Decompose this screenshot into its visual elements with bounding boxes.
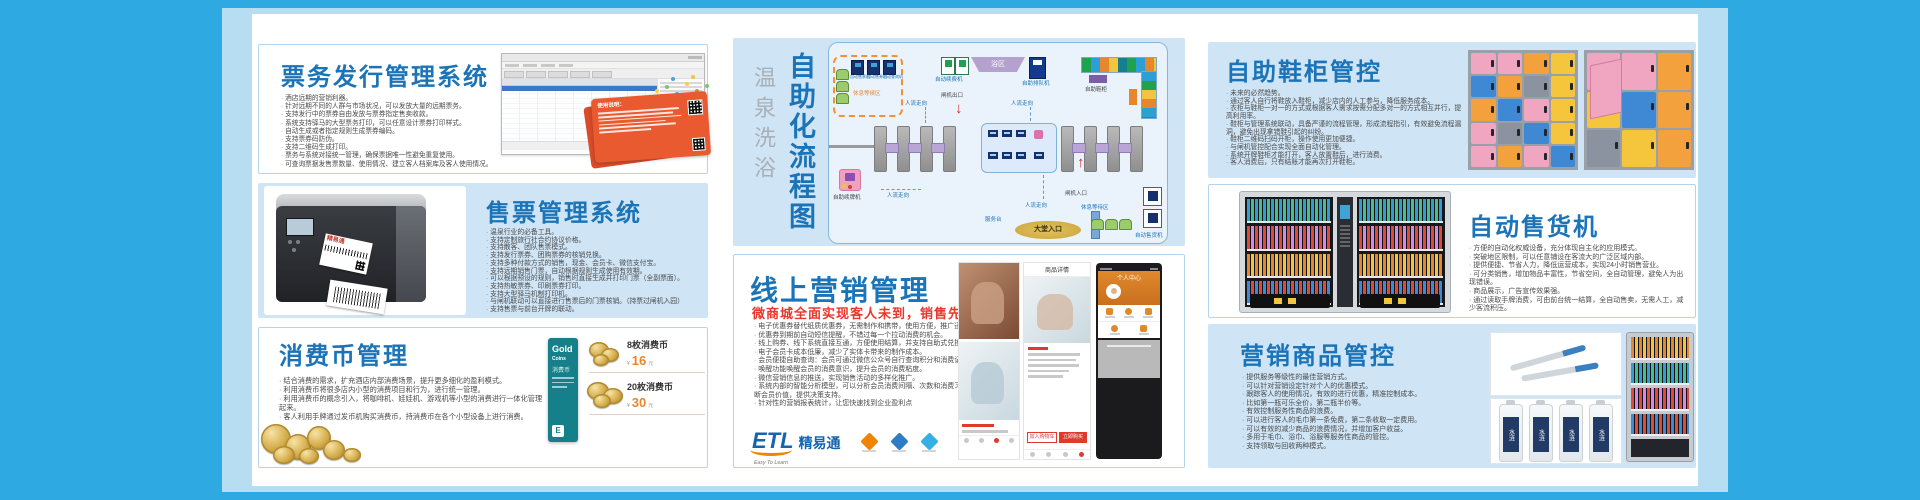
app-tabbar xyxy=(1024,449,1090,459)
chair-icon xyxy=(1091,219,1104,230)
price-value: ¥30元 xyxy=(627,395,742,410)
profile-icon-row xyxy=(1098,321,1160,338)
bullet-item: 支持票券码防伪。 xyxy=(281,136,493,144)
bullet-item: 鞋柜二维码扫码开柜，操作使用更加便捷。 xyxy=(1226,136,1462,144)
bullet-item: 与闸机管控配合实现全面自动化管理。 xyxy=(1226,144,1462,152)
bullet-item: 支持领取与回收两种模式。 xyxy=(1242,443,1482,452)
card-shoe-cabinet: 自助鞋柜管控 未来的必然趋势。通过客人自行将鞋放入鞋柜，减少店内的人工参与，降低… xyxy=(1208,42,1696,178)
bullet-item: 鞋柜与管理系统联动，具备严谨的流程管理，形成流程指引，有效避免流程漏洞，避免出现… xyxy=(1226,121,1462,136)
red-price-bar xyxy=(962,424,994,427)
chair-icon xyxy=(836,69,849,80)
dashed-path xyxy=(925,107,926,123)
dashed-path xyxy=(1030,107,1031,121)
blue-gem-icon xyxy=(920,432,938,450)
chair-icon xyxy=(1105,219,1118,230)
price-name: 20枚消费币 xyxy=(627,380,742,393)
price-value: ¥16元 xyxy=(627,353,742,368)
queue-machine-icon xyxy=(1029,57,1046,79)
window-menubar xyxy=(502,62,704,69)
bullet-item: 衣柜与鞋柜一对一的方式或根据客人需求按需分配多对一的方式相互并行，提高利用率。 xyxy=(1226,105,1462,120)
divider xyxy=(589,414,705,415)
bullet-item: 酒店远期的营销利器。 xyxy=(281,95,493,103)
bullet-item: 利用消费币将很多店内小型的消费项目和行为，进行统一管理。 xyxy=(279,385,547,394)
profile-footer xyxy=(1098,340,1160,378)
bath-photo xyxy=(959,342,1019,420)
dashed-path xyxy=(881,189,921,190)
exit-arrow-down: ↓ xyxy=(955,101,963,116)
bullet-item: 可以针对营销设定针对个人的优惠模式。 xyxy=(1242,383,1482,392)
gate-connector xyxy=(885,143,899,153)
etl-tagline: Easy To Learn xyxy=(754,453,788,473)
bullet-item: 客人消费后，只有结账才能再次打开鞋柜。 xyxy=(1226,159,1462,167)
printer-screen xyxy=(286,218,314,236)
gate-exit-label: 闸机出口 xyxy=(941,91,963,99)
bottle: 水涟 xyxy=(1589,404,1613,462)
bullet-item: 可以根据预设的规则，销售时直接生成并打印门票（全副票面）。 xyxy=(486,275,704,283)
gate-connector xyxy=(1095,143,1109,153)
profile-title: 个人中心 xyxy=(1098,271,1160,282)
vending-right-cabinet xyxy=(1357,197,1445,307)
renew-machine-icon xyxy=(941,57,955,75)
vending-map-label: 自动售货机 xyxy=(1135,231,1163,239)
printer-photo: 精易通 xyxy=(264,186,466,315)
window-titlebar xyxy=(502,54,704,62)
bullet-item: 支持热敏票券、印刷票券打印。 xyxy=(486,283,704,291)
chair-icon xyxy=(836,93,849,104)
confetti-decor xyxy=(655,89,659,93)
vending-machine-photo xyxy=(1239,191,1451,313)
bullet-item: 与闸机联动可以直接进行售票后的门票核销。（持票过闸机入园） xyxy=(486,298,704,306)
bullet-item: 跟踪客人的使用情况，有效的进行优惠，精准控制成本。 xyxy=(1242,391,1482,400)
gate-connector xyxy=(1072,143,1086,153)
vending-control-panel xyxy=(1337,197,1353,307)
divider xyxy=(589,372,705,373)
bullet-item: 提供服务等级性的最佳营销方式。 xyxy=(1242,374,1482,383)
flow-dir-label: 人流走向 xyxy=(1025,201,1047,209)
bottle: 水涟 xyxy=(1559,404,1583,462)
card-ticket-sales: 精易通 售票管理系统 温泉行业的必备工具。支持定制旅行社合约协议价格。支持散客、… xyxy=(258,183,708,318)
price-bar xyxy=(1028,347,1048,350)
gate-connector xyxy=(908,143,922,153)
window-toolbar xyxy=(502,69,704,79)
waiting-bottom-label: 休息等待区 xyxy=(1081,203,1109,211)
flow-dir-label: 人流走向 xyxy=(905,99,927,107)
app-tabbar xyxy=(959,435,1019,445)
snack-machine-base xyxy=(1631,439,1689,457)
gold-coins-card: GoldCoins 消费币 E xyxy=(548,338,578,442)
wall-line xyxy=(829,145,875,148)
price-row: 20枚消费币 ¥30元 xyxy=(627,380,742,410)
bullet-item: 提供便捷、节省人力，降低运营成本，实现24小时销售营业。 xyxy=(1469,262,1689,271)
flow-dir-label: 人流走向 xyxy=(1011,99,1033,107)
bottle: 水涟 xyxy=(1499,404,1523,462)
entry-arrow-up: ↑ xyxy=(1077,155,1085,170)
blue-cube-icon xyxy=(890,432,908,450)
bullet-item: 支持多种付款方式的销售，现金、会员卡、微信支付宝。 xyxy=(486,260,704,268)
bullet-item: 温泉行业的必备工具。 xyxy=(486,229,704,237)
bullet-item: 支持售票与前台开牌的联动。 xyxy=(486,306,704,314)
card-coins: 消费币管理 结合消费的需求，扩充酒店内部消费场景，提升更多细化的盈利模式。利用消… xyxy=(258,327,708,468)
card-title: 消费币管理 xyxy=(279,336,409,371)
gate-connector xyxy=(1118,143,1132,153)
price-name: 8枚消费币 xyxy=(627,338,742,351)
card-title: 自助鞋柜管控 xyxy=(1226,52,1382,87)
purple-chip xyxy=(1089,75,1107,83)
etl-logo: ETL Easy To Learn 精易通 xyxy=(752,431,841,453)
card-title: 票务发行管理系统 xyxy=(281,57,489,92)
bullet-item: 多用于毛巾、浴巾、浴服等服务性商品的管控。 xyxy=(1242,434,1482,443)
app-icon-cell xyxy=(892,435,906,452)
bullet-item: 可分类销售，增加物品丰富性，节省空间，全自动管理，避免人为出现错误。 xyxy=(1469,271,1689,288)
vending-square-icon xyxy=(1143,209,1162,228)
renew-machine-icon xyxy=(955,57,969,75)
bullet-list: 未来的必然趋势。通过客人自行将鞋放入鞋柜，减少店内的人工参与，降低服务成本。衣柜… xyxy=(1226,90,1462,167)
profile-header: 个人中心 xyxy=(1098,271,1160,305)
open-locker-door xyxy=(1590,59,1622,120)
bullet-list: 方便的自动化权威设备，充分体现自主化的应用模式。突破地区限制，可以任意铺设在客流… xyxy=(1469,245,1689,314)
bullet-item: 客人利用手牌通过发币机购买消费币，持消费币在各个小型设备上进行消费。 xyxy=(279,412,547,421)
card-online-marketing: 线上营销管理 微商城全面实现客人未到，销售先行的理念 电子优惠券替代纸质优惠券，… xyxy=(733,254,1185,468)
bullet-item: 可以有效的减少商品的浪费情况，并增加客户收益。 xyxy=(1242,426,1482,435)
renew-label: 自动续费机 xyxy=(935,75,963,83)
bullet-item: 支持发行中的票券自由发放与票券指定售卖收款。 xyxy=(281,111,493,119)
card-merch-control: 营销商品管控 提供服务等级性的最佳营销方式。可以针对营销设定针对个人的优惠模式。… xyxy=(1208,324,1696,468)
orange-diamond-icon xyxy=(860,432,878,450)
phone-screenshot-detail: 商品详情 加入购物车 立即购买 xyxy=(1024,263,1090,459)
bullet-item: 未来的必然趋势。 xyxy=(1226,90,1462,98)
flow-title-vertical: 自助化流程图 xyxy=(781,52,820,232)
phone-screenshot-spa xyxy=(959,263,1019,459)
flower-icon xyxy=(1034,130,1043,139)
dashed-path xyxy=(1043,175,1044,199)
dropper-photo xyxy=(1490,332,1622,396)
bullet-list: 温泉行业的必备工具。支持定制旅行社合约协议价格。支持散客、团队售票模式。支持发行… xyxy=(486,229,704,314)
promo-card: 使用说明： xyxy=(591,91,711,163)
bullet-item: 突破地区限制，可以任意铺设在客流大的广泛区域内部。 xyxy=(1469,254,1689,263)
vending-screen xyxy=(1340,205,1350,219)
gate-machine-cluster xyxy=(981,123,1057,173)
vending-left-cabinet xyxy=(1245,197,1333,307)
bullet-item: 支持发行票券、团购票券的核销兑换。 xyxy=(486,252,704,260)
app-icon-cell xyxy=(862,435,876,452)
bullet-item: 有效控制服务性商品的浪费。 xyxy=(1242,408,1482,417)
buy-now-button: 立即购买 xyxy=(1059,432,1087,443)
bullet-item: 自动生成或者指定规则生成票券编码。 xyxy=(281,128,493,136)
app-icon-cell xyxy=(922,435,936,452)
bullet-item: 结合消费的需求，扩充酒店内部消费场景，提升更多细化的盈利模式。 xyxy=(279,376,547,385)
shoe-locker-strip-vertical xyxy=(1141,71,1157,119)
dispense-slot xyxy=(1250,294,1330,308)
card-title: 自动售货机 xyxy=(1469,207,1599,242)
kiosk-icon xyxy=(883,60,896,75)
bullet-list: 提供服务等级性的最佳营销方式。可以针对营销设定针对个人的优惠模式。跟踪客人的使用… xyxy=(1242,374,1482,451)
price-row: 8枚消费币 ¥16元 xyxy=(627,338,742,368)
kiosk-icon xyxy=(867,60,880,75)
gate-entry-label: 闸机入口 xyxy=(1065,189,1087,197)
spa-photo xyxy=(959,263,1019,339)
queue-label: 自助排队机 xyxy=(1022,79,1050,87)
vending-keypad xyxy=(1340,225,1350,247)
detail-buttons: 加入购物车 立即购买 xyxy=(1027,432,1087,443)
profile-icon-row xyxy=(1098,305,1160,321)
bullet-item: 可以进行客人的毛巾第一条免费，第二条收取一定费用。 xyxy=(1242,417,1482,426)
bullet-item: 商品展示，广告宣传效果强。 xyxy=(1469,288,1689,297)
vending-square-icon xyxy=(1143,187,1162,206)
bullet-item: 系统支持驿马的大型票务打印，可以任意设计票券打印样式。 xyxy=(281,120,493,128)
bullet-item: 方便的自动化权威设备，充分体现自主化的应用模式。 xyxy=(1469,245,1689,254)
lobby-entrance: 大堂入口 xyxy=(1015,221,1081,239)
bullet-item: 通过读取手牌消费，可由前台统一结算，全自动售卖，无需人工，减少客流积压。 xyxy=(1469,297,1689,314)
card-vending: 自动售货机 方便的自动化权威设备，充分体现自主化的应用模式。突破地区限制，可以任… xyxy=(1208,184,1696,318)
phone-screenshot-profile: 个人中心 xyxy=(1096,263,1162,459)
poster-canvas: 票务发行管理系统 酒店远期的营销利器。针对远期不同的人群与市场状况，可以发放大量… xyxy=(0,0,1920,500)
bottle: 水涟 xyxy=(1529,404,1553,462)
card-flowchart: 温泉洗浴 自助化流程图 自动售票机 自动售券机 自动查询机 休息等候区 自动续费… xyxy=(733,38,1185,246)
mini-app-icons xyxy=(862,435,936,452)
kiosk-icon xyxy=(851,60,864,75)
dispense-slot xyxy=(1360,294,1440,308)
card-renew-label: 自助续牌机 xyxy=(833,193,861,201)
flow-dir-label: 人流走向 xyxy=(887,191,909,199)
card-renew-machine-icon xyxy=(839,169,861,191)
add-cart-button: 加入购物车 xyxy=(1027,432,1057,443)
shoe-label: 自助鞋柜 xyxy=(1085,85,1107,93)
selected-row xyxy=(502,86,657,91)
card-title: 售票管理系统 xyxy=(486,193,642,228)
detail-header: 商品详情 xyxy=(1024,263,1090,277)
chair-icon xyxy=(836,81,849,92)
bullet-list: 酒店远期的营销利器。针对远期不同的人群与市场状况，可以发放大量的远期票务。支持发… xyxy=(281,95,493,169)
locker-photo xyxy=(1468,50,1578,170)
chair-icon xyxy=(1119,219,1132,230)
bullet-item: 利用消费币的概念引入，将咖啡机、娃娃机、游戏机等小型的消费进行一体化管理起来。 xyxy=(279,394,547,412)
flow-map: 自动售票机 自动售券机 自动查询机 休息等候区 自动续费机 浴区 自助排队机 自… xyxy=(828,42,1168,244)
qr-code xyxy=(687,99,703,115)
waiting-top-label: 休息等候区 xyxy=(853,89,881,97)
brand-chip: E xyxy=(552,425,564,437)
qr-code xyxy=(692,137,706,151)
bullet-item: 可查询票据发售票数量、使用情况、建立客人档案库及客人使用情况。 xyxy=(281,161,493,169)
bottles-photo: 水涟 水涟 水涟 水涟 xyxy=(1490,398,1622,464)
bullet-item: 支持散客、团队售票模式。 xyxy=(486,244,704,252)
card-ticket-issue: 票务发行管理系统 酒店远期的营销利器。针对远期不同的人群与市场状况，可以发放大量… xyxy=(258,44,708,174)
avatar xyxy=(1106,284,1121,299)
product-photo xyxy=(1024,277,1090,343)
gold-card-word: GoldCoins xyxy=(552,344,574,364)
card-title: 营销商品管控 xyxy=(1240,336,1396,371)
orange-cell xyxy=(1129,89,1137,105)
gate-connector xyxy=(931,143,945,153)
kiosk-label: 自动查询机 xyxy=(883,74,903,80)
service-desk-label: 服务台 xyxy=(985,215,1002,223)
locker-photo-closeup xyxy=(1584,50,1694,170)
bullet-list: 结合消费的需求，扩充酒店内部消费场景，提升更多细化的盈利模式。利用消费币将很多店… xyxy=(279,376,547,421)
bullet-item: 票务与系统对接统一管理，确保票据唯一性避免重复使用。 xyxy=(281,152,493,160)
etl-wordmark: ETL Easy To Learn xyxy=(752,431,794,451)
snack-machine-photo xyxy=(1626,332,1694,462)
etl-cn-name: 精易通 xyxy=(799,433,841,453)
bath-zone: 浴区 xyxy=(971,57,1025,72)
flow-subtitle-vertical: 温泉洗浴 xyxy=(747,66,779,186)
